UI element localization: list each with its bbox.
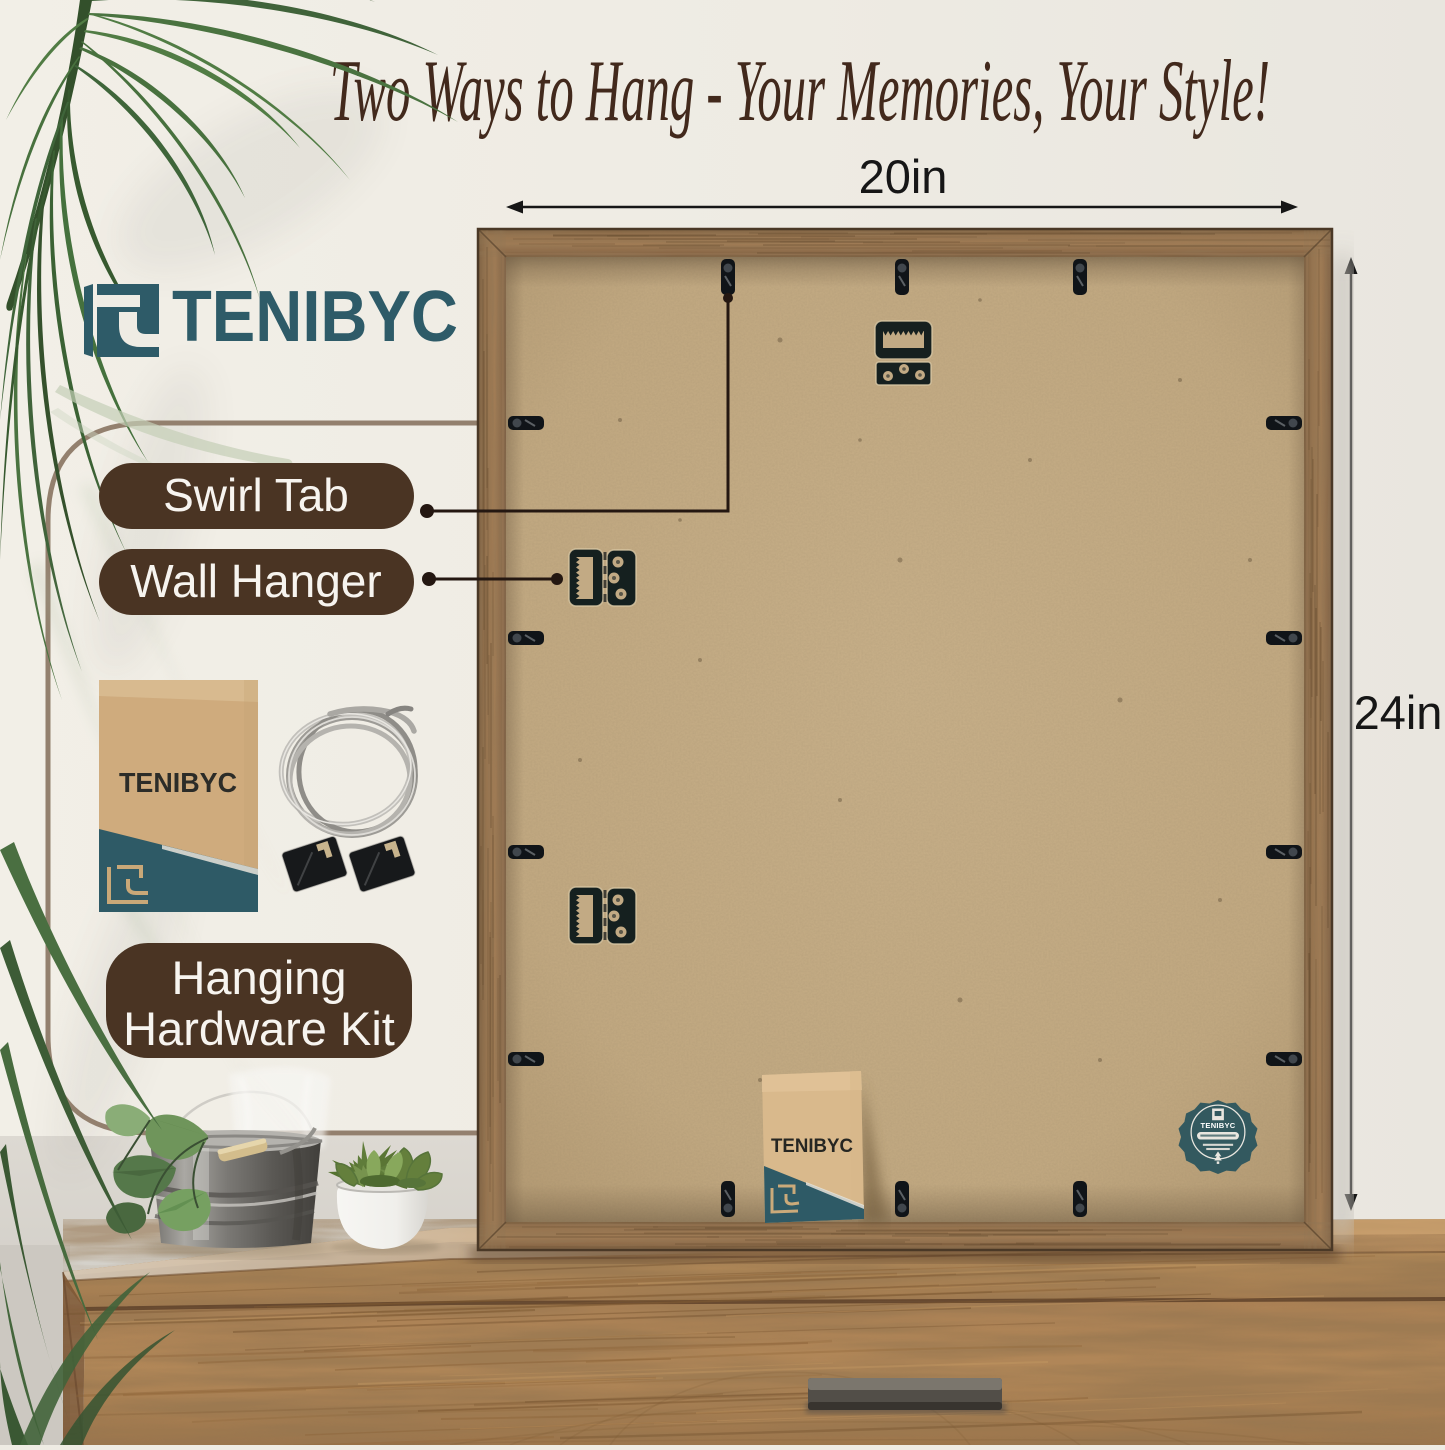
svg-text:20in: 20in xyxy=(859,150,948,203)
svg-text:Hanging: Hanging xyxy=(171,951,346,1004)
svg-text:24in: 24in xyxy=(1354,686,1443,739)
svg-text:Two Ways to Hang - Your Memori: Two Ways to Hang - Your Memories, Your S… xyxy=(330,43,1270,140)
svg-text:TENIBYC: TENIBYC xyxy=(771,1136,853,1157)
svg-text:Hardware Kit: Hardware Kit xyxy=(123,1002,395,1055)
svg-text:TENIBYC: TENIBYC xyxy=(1201,1121,1236,1130)
svg-text:Swirl Tab: Swirl Tab xyxy=(163,469,349,521)
svg-text:Wall Hanger: Wall Hanger xyxy=(130,555,381,607)
svg-text:TENIBYC: TENIBYC xyxy=(172,277,458,357)
svg-text:TENIBYC: TENIBYC xyxy=(119,767,237,798)
